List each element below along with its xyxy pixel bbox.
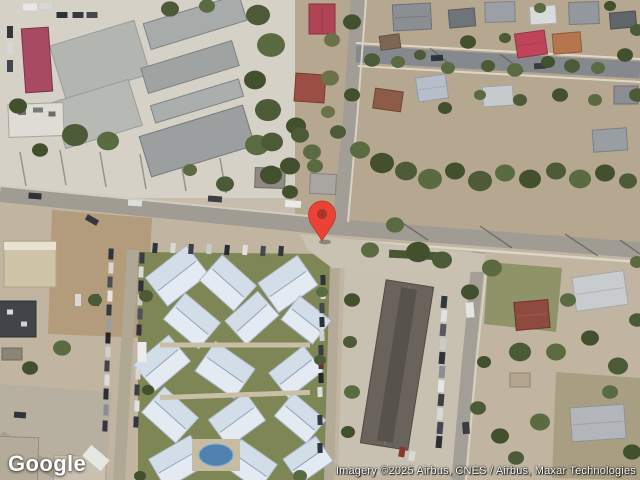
imagery-attribution: Imagery ©2025 Airbus, CNES / Airbus, Max… bbox=[336, 465, 636, 477]
pin-inner-dot-icon bbox=[317, 209, 327, 219]
satellite-map[interactable] bbox=[0, 0, 640, 480]
google-logo[interactable]: Google bbox=[8, 451, 86, 477]
water-layer bbox=[199, 444, 233, 466]
pin-shadow bbox=[319, 240, 331, 245]
satellite-map-viewport[interactable]: Google Imagery ©2025 Airbus, CNES / Airb… bbox=[0, 0, 640, 480]
